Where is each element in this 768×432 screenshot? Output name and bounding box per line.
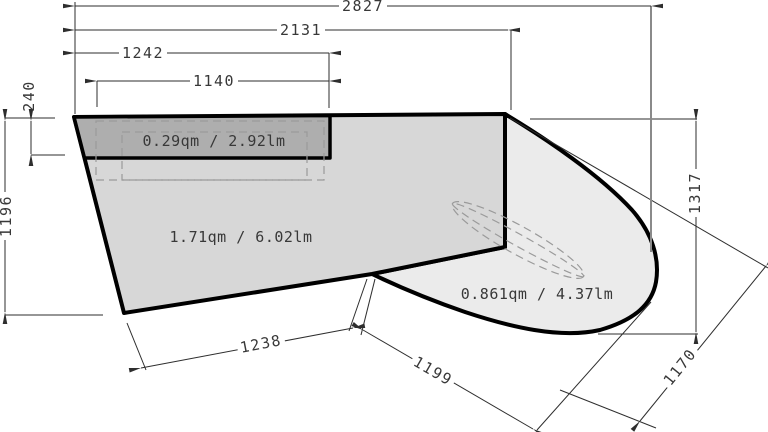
dimension-height-right: 1317 (686, 121, 704, 332)
extension-line (560, 390, 656, 428)
extension-line (127, 323, 146, 370)
shelf-area-label: 0.29qm / 2.92lm (143, 132, 286, 150)
dim-label-2827: 2827 (342, 0, 384, 15)
main-area-label: 1.71qm / 6.02lm (170, 228, 313, 246)
dimension-height-left: 1196 (0, 121, 15, 312)
dim-label-1170: 1170 (660, 345, 700, 389)
dim-label-1242: 1242 (122, 44, 164, 62)
dimension-width-to-corner: 2131 (75, 21, 508, 39)
dimension-width-total: 2827 (75, 0, 651, 15)
dimension-shelf-depth: 240 (20, 80, 38, 154)
dim-label-240: 240 (20, 80, 38, 112)
dimension-bottom-diagonal: 1199 (363, 330, 533, 429)
dim-label-2131: 2131 (280, 21, 322, 39)
extension-line (361, 279, 375, 335)
curved-area-label: 0.861qm / 4.37lm (461, 285, 614, 303)
dim-label-1199: 1199 (410, 353, 455, 390)
dim-label-1196: 1196 (0, 195, 15, 237)
dimension-diagonal-right: 1170 (640, 266, 766, 421)
dimension-width-shelf-outer: 1242 (75, 44, 329, 62)
dimension-width-shelf: 1140 (97, 72, 329, 90)
floorplan-svg: 2827 2131 1242 1140 240 1196 1238 (0, 0, 768, 432)
dim-label-1317: 1317 (686, 172, 704, 214)
cad-drawing-canvas: 2827 2131 1242 1140 240 1196 1238 (0, 0, 768, 432)
dim-label-1140: 1140 (193, 72, 235, 90)
dim-label-1238: 1238 (239, 331, 284, 357)
dimension-bottom-edge: 1238 (141, 328, 353, 368)
